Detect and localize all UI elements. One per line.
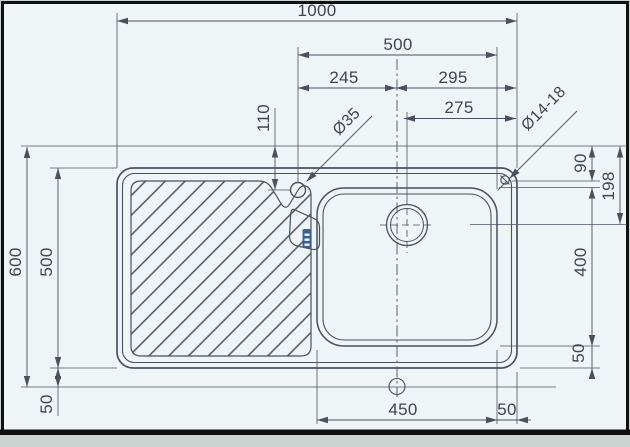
dim-label-450: 450 bbox=[388, 400, 417, 419]
drainboard bbox=[131, 181, 311, 356]
dim-label-110: 110 bbox=[254, 104, 273, 132]
dim-label-90: 90 bbox=[571, 153, 590, 173]
brand-mark-slit bbox=[305, 234, 310, 236]
frame-bottom-bar bbox=[0, 430, 630, 436]
dim-label-198: 198 bbox=[599, 171, 618, 200]
dim-label-total-width: 1000 bbox=[297, 1, 336, 20]
dim-label-500-left: 500 bbox=[37, 247, 56, 276]
sink-technical-drawing: 1000 500 245 295 275 110 600 500 50 90 1 bbox=[0, 0, 630, 447]
dim-label-50-bottom: 50 bbox=[497, 400, 517, 419]
dim-label-275: 275 bbox=[444, 98, 473, 117]
dim-label-400: 400 bbox=[571, 247, 590, 276]
dim-label-50-left: 50 bbox=[37, 394, 56, 414]
dim-label-295: 295 bbox=[438, 68, 467, 87]
brand-mark-slit bbox=[305, 244, 310, 246]
dim-label-500-top: 500 bbox=[383, 35, 412, 54]
dim-label-600: 600 bbox=[6, 247, 25, 276]
dim-label-245: 245 bbox=[329, 68, 358, 87]
brand-mark-slit bbox=[305, 239, 310, 241]
dim-label-50-right: 50 bbox=[569, 343, 588, 363]
scanned-technical-drawing-page: 1000 500 245 295 275 110 600 500 50 90 1 bbox=[0, 0, 630, 447]
